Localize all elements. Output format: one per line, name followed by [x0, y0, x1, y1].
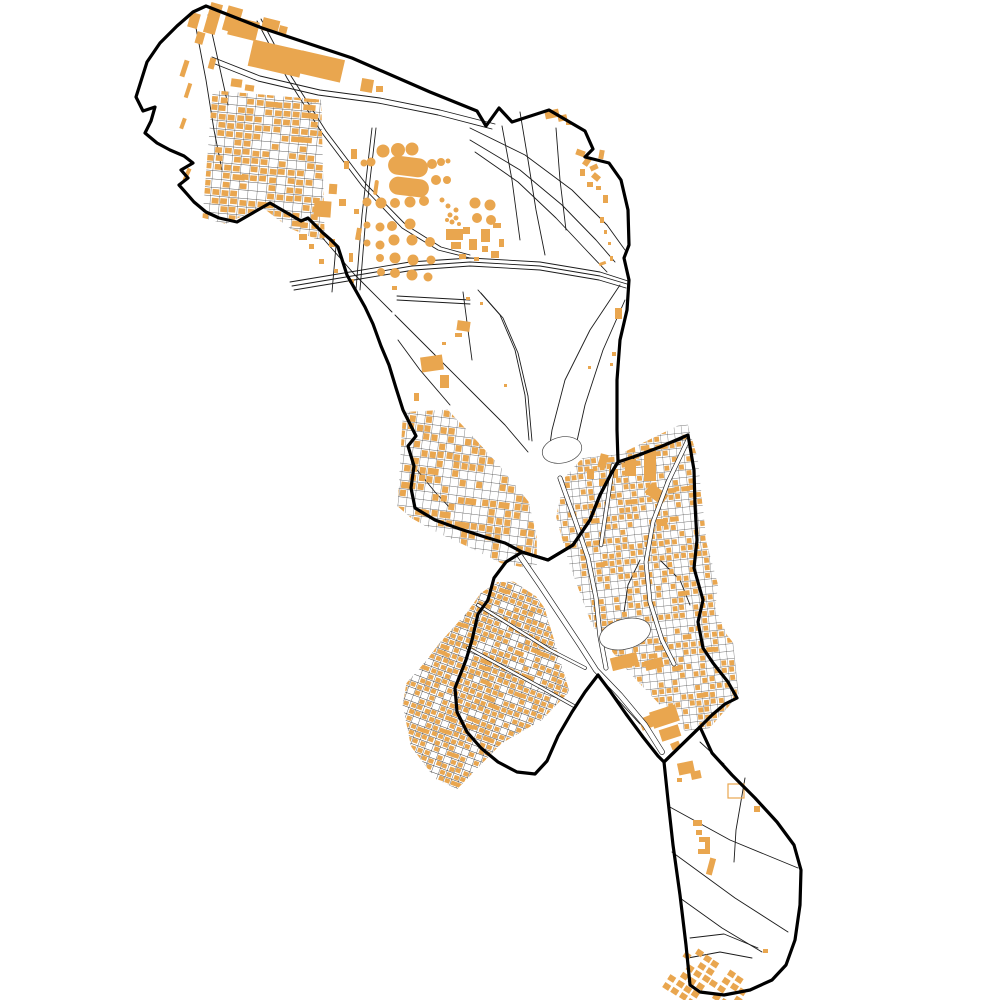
storage-tank: [454, 216, 459, 221]
building-footprint: [257, 100, 264, 106]
building-footprint: [432, 494, 439, 501]
building-footprint: [216, 155, 223, 161]
building-footprint: [619, 514, 624, 519]
building-footprint: [417, 483, 424, 490]
building-footprint: [575, 504, 580, 509]
building-footprint: [414, 441, 421, 448]
building-footprint: [581, 563, 586, 568]
building-footprint: [674, 553, 679, 558]
building-footprint: [238, 208, 245, 214]
building-footprint: [610, 363, 613, 366]
building-footprint: [616, 478, 621, 483]
building-footprint: [296, 180, 303, 186]
building-footprint: [675, 702, 680, 707]
building-footprint: [633, 499, 638, 504]
building-footprint: [578, 474, 583, 479]
building-footprint: [274, 211, 281, 217]
building-footprint: [586, 541, 591, 546]
storage-tank: [390, 268, 400, 278]
building-footprint: [669, 569, 674, 574]
building-footprint: [664, 465, 669, 470]
building-footprint: [690, 700, 695, 705]
building-footprint: [632, 572, 637, 577]
building-footprint: [659, 555, 664, 560]
building-footprint: [612, 515, 617, 520]
building-footprint: [612, 352, 616, 356]
building-footprint: [287, 178, 294, 184]
storage-tank: [364, 222, 371, 229]
building-footprint: [637, 543, 642, 548]
building-footprint: [329, 184, 338, 195]
building-footprint: [219, 105, 226, 111]
building-footprint: [600, 606, 605, 611]
building-footprint: [250, 166, 257, 172]
building-footprint: [704, 706, 709, 711]
building-footprint: [522, 504, 529, 511]
building-footprint: [662, 577, 667, 582]
building-footprint: [624, 559, 629, 564]
building-footprint: [254, 125, 261, 131]
building-footprint: [721, 660, 726, 665]
building-footprint: [689, 627, 694, 632]
building-footprint: [431, 434, 438, 441]
building-footprint: [474, 257, 479, 261]
building-footprint: [465, 439, 472, 446]
building-footprint: [695, 685, 700, 690]
building-footprint: [666, 547, 671, 552]
building-footprint: [684, 582, 689, 587]
building-footprint: [589, 495, 594, 500]
building-footprint: [679, 464, 684, 469]
building-footprint: [659, 689, 664, 694]
building-footprint: [686, 538, 691, 543]
building-footprint: [262, 151, 269, 157]
building-footprint: [711, 698, 716, 703]
building-footprint: [265, 109, 272, 115]
building-footprint: [616, 559, 621, 564]
building-footprint: [700, 536, 705, 541]
storage-tank: [387, 221, 397, 231]
building-footprint: [705, 573, 710, 578]
building-footprint: [276, 194, 283, 200]
building-footprint: [245, 84, 255, 91]
building-footprint: [674, 486, 679, 491]
storage-tank: [443, 176, 451, 184]
building-footprint: [691, 581, 696, 586]
building-footprint: [304, 197, 311, 203]
building-footprint: [462, 455, 469, 462]
building-footprint: [681, 545, 686, 550]
building-footprint: [465, 498, 476, 506]
building-footprint: [607, 538, 612, 543]
building-footprint: [220, 198, 227, 204]
building-footprint: [683, 576, 688, 581]
building-footprint: [427, 468, 438, 476]
building-footprint: [278, 169, 285, 175]
storage-tank: [425, 237, 435, 247]
building-footprint: [651, 548, 656, 553]
building-footprint: [504, 519, 511, 526]
building-footprint: [683, 709, 688, 714]
building-footprint: [710, 692, 715, 697]
storage-tank: [367, 158, 376, 167]
storage-tank: [376, 198, 387, 209]
storage-tank: [405, 197, 416, 208]
building-footprint: [593, 547, 598, 552]
building-footprint: [298, 154, 305, 160]
building-footprint: [316, 165, 323, 171]
building-footprint: [456, 320, 470, 332]
building-footprint: [722, 668, 727, 673]
building-footprint: [240, 183, 247, 189]
building-footprint: [754, 806, 760, 812]
building-footprint: [666, 555, 671, 560]
building-footprint: [683, 649, 688, 654]
building-footprint: [610, 256, 613, 261]
building-footprint: [698, 849, 710, 854]
building-footprint: [246, 108, 253, 114]
building-footprint: [657, 519, 667, 526]
building-footprint: [454, 454, 461, 461]
building-footprint: [219, 114, 226, 120]
building-footprint: [274, 118, 281, 124]
storage-tank: [448, 213, 453, 218]
building-footprint: [676, 502, 681, 507]
building-footprint: [693, 671, 698, 676]
building-footprint: [683, 634, 692, 640]
building-footprint: [496, 518, 503, 525]
building-footprint: [319, 259, 324, 264]
building-footprint: [417, 424, 424, 431]
building-footprint: [234, 149, 241, 155]
building-footprint: [230, 78, 242, 87]
building-footprint: [461, 463, 468, 470]
building-footprint: [284, 102, 291, 108]
building-footprint: [288, 170, 295, 176]
building-footprint: [662, 570, 667, 575]
building-footprint: [414, 393, 419, 401]
building-footprint: [293, 103, 300, 109]
building-footprint: [680, 613, 685, 618]
building-footprint: [635, 603, 640, 608]
building-footprint: [678, 657, 683, 662]
building-footprint: [667, 562, 672, 567]
storage-tank: [408, 255, 419, 266]
building-footprint: [602, 554, 607, 559]
building-footprint: [269, 177, 276, 183]
building-footprint: [279, 161, 286, 167]
building-footprint: [580, 169, 585, 176]
building-footprint: [603, 195, 608, 203]
building-footprint: [267, 193, 274, 199]
building-footprint: [562, 521, 567, 526]
building-footprint: [625, 507, 630, 512]
building-footprint: [455, 445, 462, 452]
building-footprint: [609, 561, 614, 566]
building-footprint: [610, 493, 615, 498]
building-footprint: [247, 99, 254, 105]
building-footprint: [420, 355, 444, 373]
building-footprint: [618, 500, 623, 505]
building-footprint: [404, 465, 411, 472]
building-footprint: [244, 133, 251, 139]
building-footprint: [678, 597, 683, 602]
building-footprint: [680, 673, 685, 678]
storage-tank: [446, 159, 451, 164]
building-footprint: [455, 333, 462, 337]
building-footprint: [570, 527, 575, 532]
storage-tank: [391, 143, 405, 157]
building-footprint: [470, 523, 477, 530]
building-footprint: [655, 645, 664, 651]
building-footprint: [656, 592, 661, 597]
building-footprint: [431, 510, 438, 517]
building-footprint: [672, 606, 677, 611]
building-footprint: [625, 573, 630, 578]
building-footprint: [681, 694, 686, 699]
building-footprint: [354, 209, 359, 214]
building-footprint: [616, 545, 621, 550]
building-footprint: [503, 527, 510, 534]
building-footprint: [426, 416, 433, 423]
storage-tank: [361, 160, 368, 167]
building-footprint: [477, 465, 484, 472]
storage-tank: [454, 208, 459, 213]
building-footprint: [672, 539, 677, 544]
building-footprint: [588, 503, 593, 508]
building-footprint: [283, 111, 290, 117]
building-footprint: [585, 459, 590, 464]
building-footprint: [654, 437, 659, 442]
building-footprint: [637, 475, 642, 480]
building-footprint: [283, 119, 290, 125]
building-footprint: [656, 451, 661, 456]
building-footprint: [241, 174, 248, 180]
building-footprint: [469, 239, 477, 250]
building-footprint: [423, 433, 430, 440]
building-footprint: [479, 524, 486, 531]
storage-tank: [457, 222, 461, 226]
building-footprint: [243, 149, 250, 155]
building-footprint: [437, 451, 444, 458]
building-footprint: [696, 492, 701, 497]
building-footprint: [639, 565, 644, 570]
storage-tank: [440, 198, 445, 203]
building-footprint: [491, 251, 499, 258]
building-footprint: [681, 553, 686, 558]
building-footprint: [656, 586, 661, 591]
building-footprint: [309, 244, 314, 249]
building-footprint: [294, 195, 301, 201]
building-footprint: [615, 605, 620, 610]
building-footprint: [719, 631, 724, 636]
building-footprint: [238, 107, 245, 113]
storage-tank: [450, 220, 455, 225]
building-footprint: [729, 666, 734, 671]
building-footprint: [315, 173, 322, 179]
building-footprint: [224, 165, 231, 171]
building-footprint: [684, 724, 689, 729]
building-footprint: [526, 539, 533, 546]
building-footprint: [702, 550, 707, 555]
building-footprint: [260, 159, 267, 165]
building-footprint: [697, 499, 702, 504]
building-footprint: [310, 231, 317, 237]
building-footprint: [614, 597, 619, 602]
building-footprint: [605, 576, 610, 581]
building-footprint: [299, 234, 307, 240]
building-footprint: [668, 495, 673, 500]
building-footprint: [313, 200, 331, 217]
building-footprint: [698, 707, 703, 712]
building-footprint: [514, 512, 521, 519]
building-footprint: [227, 123, 234, 129]
building-footprint: [703, 692, 708, 697]
building-footprint: [615, 538, 620, 543]
building-footprint: [700, 655, 705, 660]
building-footprint: [448, 503, 455, 510]
building-footprint: [426, 476, 433, 483]
building-footprint: [210, 104, 217, 110]
building-footprint: [301, 129, 308, 135]
building-footprint: [297, 170, 304, 176]
building-footprint: [487, 517, 494, 524]
storage-tank: [364, 240, 371, 247]
building-footprint: [657, 667, 662, 672]
building-footprint: [469, 464, 476, 471]
building-footprint: [627, 595, 632, 600]
building-footprint: [225, 147, 232, 153]
building-footprint: [608, 242, 611, 245]
building-footprint: [647, 638, 652, 643]
building-footprint: [230, 198, 237, 204]
building-footprint: [686, 664, 691, 669]
building-footprint: [657, 533, 662, 538]
building-footprint: [442, 486, 449, 493]
building-footprint: [673, 480, 678, 485]
building-footprint: [212, 198, 219, 204]
storage-tank: [437, 158, 445, 166]
building-footprint: [648, 653, 657, 659]
building-footprint: [442, 342, 446, 345]
building-footprint: [633, 581, 638, 586]
building-footprint: [654, 638, 659, 643]
building-footprint: [482, 499, 489, 506]
building-footprint: [620, 530, 625, 535]
building-footprint: [448, 428, 455, 435]
building-footprint: [221, 97, 228, 103]
building-footprint: [491, 552, 498, 559]
building-footprint: [581, 489, 586, 494]
building-footprint: [610, 568, 615, 573]
storage-tank: [376, 241, 385, 250]
building-footprint: [582, 504, 587, 509]
building-footprint: [226, 131, 233, 137]
building-footprint: [215, 147, 222, 153]
building-footprint: [400, 489, 407, 496]
building-footprint: [441, 495, 448, 502]
building-footprint: [709, 610, 714, 615]
building-footprint: [498, 502, 509, 510]
building-footprint: [563, 536, 568, 541]
storage-tank: [407, 270, 418, 281]
building-footprint: [334, 269, 338, 273]
building-footprint: [627, 514, 632, 519]
building-footprint: [245, 124, 252, 130]
storage-tank: [427, 159, 437, 169]
building-footprint: [516, 495, 523, 502]
building-footprint: [673, 613, 678, 618]
building-footprint: [560, 499, 565, 504]
building-footprint: [587, 469, 594, 479]
building-footprint: [665, 539, 670, 544]
building-footprint: [685, 590, 690, 595]
building-footprint: [307, 155, 314, 161]
building-footprint: [505, 511, 512, 518]
building-footprint: [237, 115, 244, 121]
building-footprint: [275, 102, 282, 108]
building-footprint: [712, 631, 717, 636]
building-footprint: [664, 659, 669, 664]
building-footprint: [292, 111, 299, 117]
building-footprint: [606, 524, 611, 529]
building-footprint: [708, 602, 713, 607]
building-footprint: [601, 473, 606, 478]
building-footprint: [227, 115, 234, 121]
building-footprint: [618, 574, 623, 579]
building-footprint: [286, 187, 293, 193]
storage-tank: [390, 198, 400, 208]
building-footprint: [670, 516, 679, 522]
storage-tank: [470, 198, 481, 209]
building-footprint: [453, 462, 460, 469]
building-footprint: [351, 149, 357, 159]
building-footprint: [310, 130, 317, 136]
building-footprint: [600, 217, 604, 223]
building-footprint: [676, 642, 681, 647]
building-footprint: [286, 196, 293, 202]
building-footprint: [581, 571, 586, 576]
storage-tank: [445, 218, 449, 222]
building-footprint: [688, 545, 693, 550]
building-footprint: [339, 199, 346, 206]
building-footprint: [676, 575, 681, 580]
building-footprint: [217, 130, 224, 136]
building-footprint: [349, 253, 353, 262]
building-footprint: [705, 565, 710, 570]
building-footprint: [634, 514, 639, 519]
building-footprint: [717, 624, 722, 629]
cadastral-map: [0, 0, 1000, 1000]
building-footprint: [659, 682, 664, 687]
building-footprint: [622, 544, 627, 549]
building-footprint: [440, 427, 447, 434]
building-footprint: [218, 122, 225, 128]
building-footprint: [667, 696, 672, 701]
building-footprint: [597, 569, 602, 574]
building-footprint: [452, 470, 459, 477]
building-footprint: [499, 239, 504, 247]
building-footprint: [640, 572, 645, 577]
building-footprint: [221, 190, 228, 196]
building-footprint: [638, 550, 643, 555]
building-footprint: [627, 588, 632, 593]
building-footprint: [671, 525, 676, 530]
building-footprint: [295, 188, 302, 194]
building-footprint: [666, 688, 671, 693]
building-footprint: [612, 524, 617, 529]
building-footprint: [429, 451, 436, 458]
